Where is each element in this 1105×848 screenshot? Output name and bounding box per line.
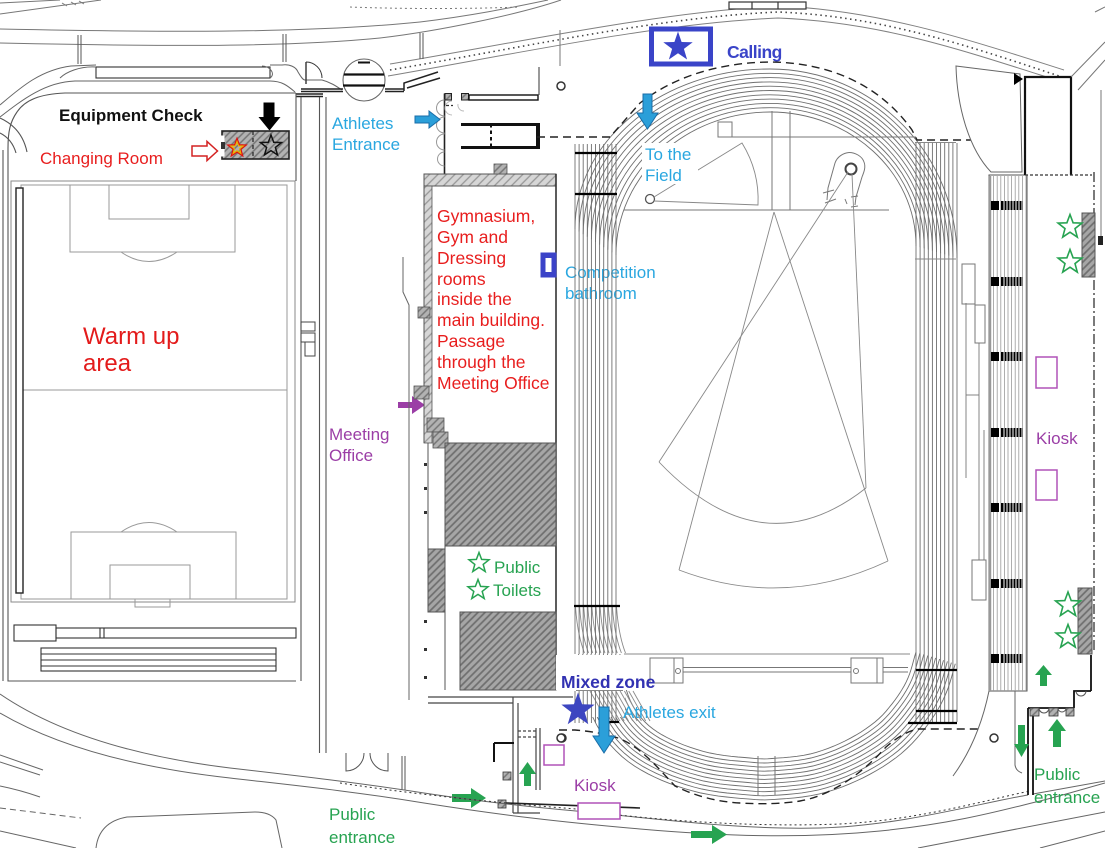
- svg-text:Equipment Check: Equipment Check: [59, 106, 203, 125]
- svg-text:Public: Public: [1034, 765, 1081, 784]
- svg-text:Gymnasium,: Gymnasium,: [437, 206, 535, 226]
- svg-text:bathroom: bathroom: [565, 284, 637, 303]
- svg-text:area: area: [83, 350, 132, 377]
- svg-text:Field: Field: [645, 166, 682, 185]
- svg-text:entrance: entrance: [329, 828, 395, 847]
- svg-text:Calling: Calling: [727, 42, 782, 62]
- svg-text:Entrance: Entrance: [332, 135, 400, 154]
- svg-text:Kiosk: Kiosk: [574, 776, 616, 795]
- svg-text:Athletes: Athletes: [332, 114, 393, 133]
- svg-text:inside the: inside the: [437, 289, 512, 309]
- svg-text:Gym and: Gym and: [437, 227, 508, 247]
- svg-text:Warm up: Warm up: [83, 323, 179, 350]
- svg-text:Passage: Passage: [437, 331, 505, 351]
- svg-text:Dressing: Dressing: [437, 248, 506, 268]
- svg-text:Mixed zone: Mixed zone: [561, 672, 656, 692]
- svg-text:Toilets: Toilets: [493, 581, 541, 600]
- svg-text:rooms: rooms: [437, 269, 486, 289]
- svg-text:Changing Room: Changing Room: [40, 149, 163, 168]
- svg-text:Competition: Competition: [565, 263, 656, 282]
- svg-text:entrance: entrance: [1034, 788, 1100, 807]
- svg-text:Meeting Office: Meeting Office: [437, 373, 550, 393]
- svg-text:Meeting: Meeting: [329, 425, 389, 444]
- svg-text:Public: Public: [494, 558, 541, 577]
- svg-text:main building.: main building.: [437, 310, 545, 330]
- svg-text:Public: Public: [329, 805, 376, 824]
- svg-text:through the: through the: [437, 352, 526, 372]
- svg-text:Office: Office: [329, 446, 373, 465]
- svg-text:Kiosk: Kiosk: [1036, 429, 1078, 448]
- svg-text:To the: To the: [645, 145, 691, 164]
- svg-text:Athletes exit: Athletes exit: [623, 703, 716, 722]
